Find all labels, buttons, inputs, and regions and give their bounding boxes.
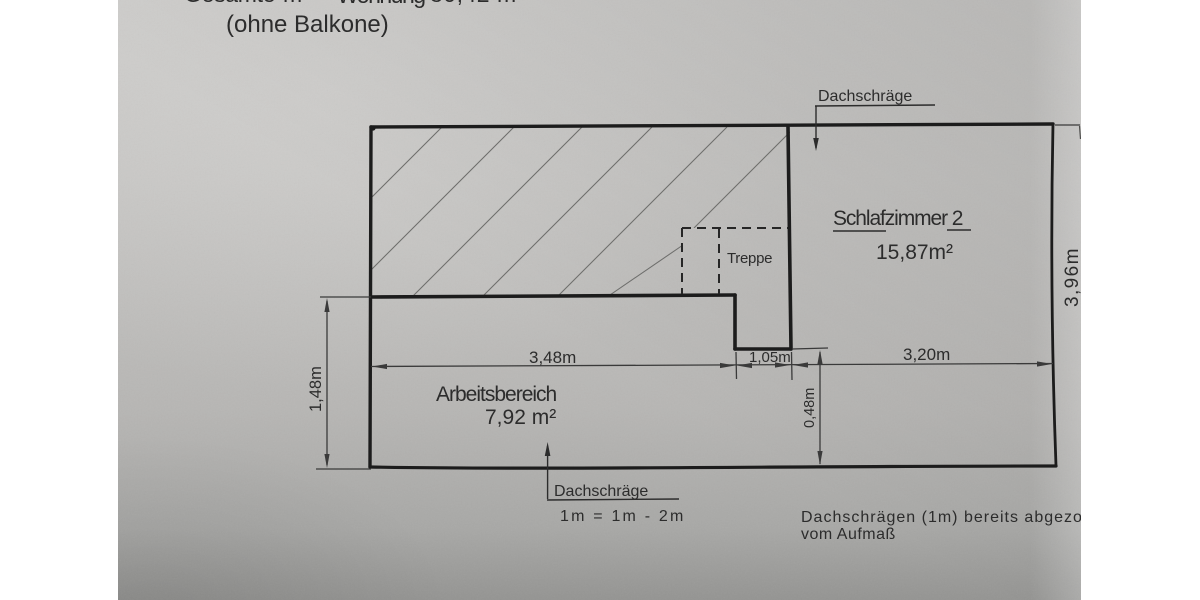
svg-text:80,42 m²: 80,42 m²	[430, 0, 525, 7]
svg-text:Wohnung: Wohnung	[337, 0, 425, 8]
svg-text:Dachschräge: Dachschräge	[818, 88, 912, 105]
svg-text:1,05m: 1,05m	[749, 349, 791, 366]
svg-text:Gesamte: Gesamte	[184, 0, 275, 7]
svg-text:Arbeitsbereich: Arbeitsbereich	[436, 383, 557, 406]
svg-text:m²: m²	[283, 0, 310, 7]
svg-text:3,20m: 3,20m	[903, 345, 950, 364]
svg-text:(ohne Balkone): (ohne Balkone)	[226, 11, 389, 38]
svg-text:15,87m²: 15,87m²	[876, 241, 953, 264]
svg-text:1m = 1m - 2m: 1m = 1m - 2m	[560, 508, 686, 525]
svg-text:3,48m: 3,48m	[529, 348, 576, 367]
svg-text:0,48m: 0,48m	[802, 388, 818, 428]
svg-text:Dachschräge: Dachschräge	[554, 483, 648, 500]
svg-text:Schlafzimmer 2: Schlafzimmer 2	[833, 207, 963, 230]
svg-text:vom Aufmaß: vom Aufmaß	[801, 526, 896, 543]
svg-text:7,92 m²: 7,92 m²	[485, 406, 556, 429]
svg-text:Treppe: Treppe	[727, 250, 772, 267]
svg-text:3,96m: 3,96m	[1062, 247, 1083, 307]
svg-text:Dachschrägen (1m) bereits abge: Dachschrägen (1m) bereits abgezo	[801, 509, 1083, 526]
svg-text:1,48m: 1,48m	[307, 366, 325, 412]
